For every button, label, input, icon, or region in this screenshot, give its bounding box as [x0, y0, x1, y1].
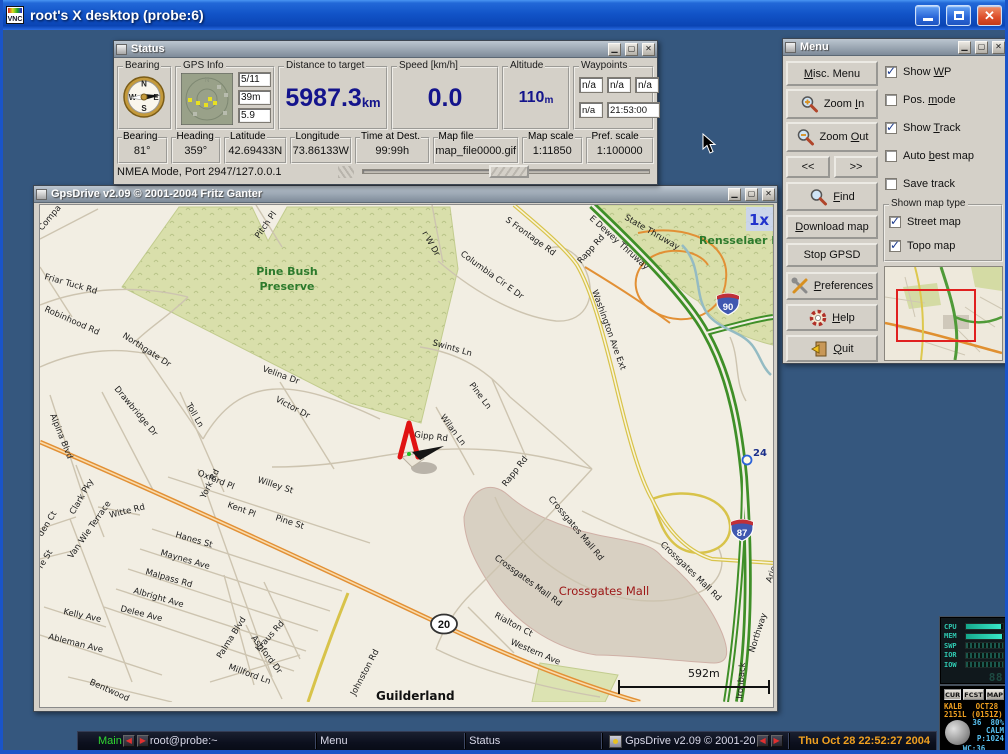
svg-text:1x: 1x	[749, 211, 769, 229]
altitude-value: 110	[519, 89, 545, 107]
gps-altitude-field[interactable]: 39m	[238, 90, 271, 105]
us-20-shield: 20	[431, 615, 457, 634]
sysmon-row-cpu: CPU	[944, 622, 1004, 631]
status-field-heading: Heading359°	[171, 137, 222, 164]
xp-titlebar[interactable]: VNC root's X desktop (probe:6) ✕	[0, 0, 1008, 30]
map-canvas[interactable]: 90 87 20 24	[39, 204, 774, 708]
desk-prev-button[interactable]: ◀	[123, 735, 135, 747]
status-field-pref-scale: Pref. scale1:100000	[586, 137, 655, 164]
checkbox-row-show-track: Show Track	[885, 118, 960, 138]
svg-text:592m: 592m	[688, 667, 720, 680]
waypoint-entry-2[interactable]: n/a	[607, 77, 631, 93]
menu-titlebar[interactable]: Menu ▁ ▢ ✕	[783, 39, 1007, 56]
status-titlebar[interactable]: Status ▁ ▢ ✕	[114, 41, 657, 58]
menu-title: Menu	[800, 41, 954, 53]
menu-button-misc-menu[interactable]: Misc. Menu	[786, 61, 878, 86]
svg-text:N: N	[204, 77, 209, 84]
taskbar-menu-window[interactable]: Menu	[320, 735, 460, 747]
weather-tab-cur[interactable]: CUR	[944, 689, 961, 700]
svg-text:E: E	[153, 93, 159, 102]
minimize-button[interactable]: ▁	[608, 43, 621, 56]
statusbar: NMEA Mode, Port 2947/127.0.0.1	[117, 162, 654, 181]
bearing-frame: Bearing N W S E	[117, 66, 172, 130]
compass: N W S E	[120, 72, 168, 120]
taskbar-gpsdrive-window[interactable]: GpsDrive v2.09 © 2001-20	[625, 735, 755, 747]
preferences-icon	[791, 277, 809, 295]
waypoint-entry-1[interactable]: n/a	[579, 77, 603, 93]
speed-frame: Speed [km/h] 0.0	[391, 66, 499, 130]
zoom-level-badge: 1x	[746, 207, 773, 231]
sysmon-row-mem: MEM	[944, 632, 1004, 641]
close-button[interactable]: ✕	[762, 188, 775, 201]
sysmon-row-ior: IOR	[944, 651, 1004, 660]
weather-tab-fcst[interactable]: FCST	[963, 689, 983, 700]
checkbox-save-track[interactable]	[885, 178, 897, 190]
maximize-button[interactable]: ▢	[975, 41, 988, 54]
help-icon	[809, 309, 827, 327]
waypoints-frame: Waypoints n/an/an/a n/a21:53:00	[573, 66, 654, 130]
map-label: Preserve	[259, 280, 314, 293]
window-menu-icon[interactable]	[36, 189, 47, 200]
checkbox-pos-mode[interactable]	[885, 94, 897, 106]
waypoint-entry-5[interactable]: 21:53:00	[607, 102, 660, 118]
menu-button-preferences[interactable]: Preferences	[786, 272, 878, 300]
gpsdrive-titlebar[interactable]: GpsDrive v2.09 © 2001-2004 Fritz Ganter …	[34, 186, 777, 203]
svg-text:90: 90	[723, 302, 734, 313]
window-menu-icon[interactable]	[785, 42, 796, 53]
map-label: Crossgates Mall	[559, 584, 649, 598]
svg-text:24: 24	[753, 448, 767, 459]
minimap[interactable]	[884, 266, 1003, 361]
satellite-skyplot: N	[181, 73, 233, 125]
sysmon-row-swp: SWP	[944, 641, 1004, 650]
cpu-bar	[965, 623, 1004, 630]
status-window: Status ▁ ▢ ✕ Bearing N W S E	[113, 40, 658, 185]
gpsdrive-title: GpsDrive v2.09 © 2001-2004 Fritz Ganter	[51, 188, 724, 200]
menu-window: Menu ▁ ▢ ✕ Misc. MenuZoom InZoom Out<<>>…	[782, 38, 1008, 364]
window-menu-icon[interactable]	[116, 44, 127, 55]
distance-value: 5987.3	[285, 84, 361, 113]
taskbar-status-window[interactable]: Status	[469, 735, 597, 747]
menu-button-zoom-out[interactable]: Zoom Out	[786, 122, 878, 152]
svg-text:S: S	[141, 104, 147, 113]
checkbox-street-map[interactable]	[889, 216, 901, 228]
menu-button-stop-gpsd[interactable]: Stop GPSD	[786, 243, 878, 267]
window-title: root's X desktop (probe:6)	[30, 7, 909, 23]
close-button[interactable]: ✕	[642, 43, 655, 56]
taskbar-main[interactable]: Main	[98, 735, 122, 747]
weather-dockapp: CURFCSTMAP KALB OCT28 2151L (0151Z) 36 8…	[940, 686, 1008, 752]
svg-text:20: 20	[438, 619, 450, 631]
gps-dop-field[interactable]: 5.9	[238, 108, 271, 123]
minimize-button[interactable]: ▁	[958, 41, 971, 54]
status-field-time-at-dest-: Time at Dest.99:99h	[355, 137, 430, 164]
checkbox-topo-map[interactable]	[889, 240, 901, 252]
svg-text:87: 87	[737, 528, 748, 539]
checkbox-row-save-track: Save track	[885, 174, 955, 194]
close-button[interactable]: ✕	[992, 41, 1005, 54]
gpsdrive-window: GpsDrive v2.09 © 2001-2004 Fritz Ganter …	[33, 185, 778, 712]
status-field-map-scale: Map scale1:11850	[522, 137, 583, 164]
menu-button-download-map[interactable]: Download map	[786, 215, 878, 239]
gpsdrive-taskbar-icon	[609, 735, 622, 748]
maximize-button[interactable]	[946, 5, 971, 26]
waypoint-entry-3[interactable]: n/a	[635, 77, 659, 93]
weather-windchill: WC:36	[944, 744, 1004, 753]
swp-bar	[965, 642, 1004, 649]
checkbox-row-topo-map: Topo map	[889, 236, 955, 256]
waypoint-entry-4[interactable]: n/a	[579, 102, 603, 118]
menu-button-zoom-in[interactable]: Zoom In	[786, 89, 878, 119]
menu-button-help[interactable]: Help	[786, 304, 878, 331]
maximize-button[interactable]: ▢	[745, 188, 758, 201]
resize-grip[interactable]	[338, 166, 354, 178]
map-label: Rensselaer Lan	[699, 234, 773, 247]
status-title: Status	[131, 43, 604, 55]
ior-bar	[965, 652, 1004, 659]
minimize-button[interactable]: ▁	[728, 188, 741, 201]
map-label: Guilderland	[376, 689, 455, 702]
menu-button-map-next[interactable]: >>	[834, 156, 878, 178]
sysmon-row-iow: IOW	[944, 660, 1004, 669]
altitude-frame: Altitude 110m	[502, 66, 570, 130]
gps-info-frame: GPS Info N 5/11 39m 5.9	[175, 66, 275, 130]
gps-satellites-field[interactable]: 5/11	[238, 72, 271, 87]
map-label: Pine Bush	[256, 265, 318, 278]
weather-tab-map[interactable]: MAP	[986, 689, 1004, 700]
zoom-out-icon	[796, 128, 815, 146]
win-prev-button[interactable]: ◀	[757, 735, 769, 747]
map-position-slider[interactable]	[362, 169, 651, 174]
vnc-icon: VNC	[6, 6, 24, 24]
taskbar-clock: Thu Oct 28 22:52:27 2004	[793, 735, 936, 747]
checkbox-auto-best-map[interactable]	[885, 150, 897, 162]
win-next-button[interactable]: ▶	[771, 735, 783, 747]
checkbox-show-wp[interactable]	[885, 66, 897, 78]
find-icon	[809, 188, 828, 206]
menu-button-map-prev[interactable]: <<	[786, 156, 830, 178]
mem-bar	[965, 633, 1004, 640]
slider-handle[interactable]	[489, 165, 529, 178]
nmea-status-text: NMEA Mode, Port 2947/127.0.0.1	[117, 166, 282, 178]
status-field-bearing: Bearing81°	[117, 137, 168, 164]
checkbox-row-street-map: Street map	[889, 212, 961, 232]
checkbox-row-show-wp: Show WP	[885, 62, 951, 82]
vnc-window: VNC root's X desktop (probe:6) ✕ GpsDriv…	[0, 0, 1008, 754]
checkbox-row-pos-mode: Pos. mode	[885, 90, 956, 110]
checkbox-show-track[interactable]	[885, 122, 897, 134]
speed-value: 0.0	[428, 84, 463, 113]
zoom-in-icon	[800, 95, 819, 113]
status-field-latitude: Latitude42.69433N	[224, 137, 287, 164]
moon-phase-icon	[945, 720, 970, 745]
map-svg: 90 87 20 24	[40, 205, 773, 702]
checkbox-row-auto-best-map: Auto best map	[885, 146, 974, 166]
status-field-map-file: Map filemap_file0000.gif	[433, 137, 520, 164]
quit-icon	[810, 340, 828, 358]
distance-frame: Distance to target 5987.3km	[278, 66, 388, 130]
mouse-cursor	[702, 133, 718, 155]
status-field-longitude: Longitude73.86133W	[290, 137, 353, 164]
close-button[interactable]: ✕	[977, 5, 1002, 26]
taskbar: Main ◀ ▶ root@probe:~ Menu Status GpsDri…	[77, 731, 937, 751]
menu-button-quit[interactable]: Quit	[786, 335, 878, 362]
maximize-button[interactable]: ▢	[625, 43, 638, 56]
status-fields-row: Bearing81°Heading359°Latitude42.69433NLo…	[117, 137, 654, 164]
desk-next-button[interactable]: ▶	[137, 735, 149, 747]
map-type-frame: Shown map type Street mapTopo map	[883, 204, 1003, 262]
minimize-button[interactable]	[915, 5, 940, 26]
menu-button-find[interactable]: Find	[786, 182, 878, 211]
sysmon-dockapp: CPUMEMSWPIORIOW 88 88.28.32	[940, 617, 1008, 684]
taskbar-terminal[interactable]: root@probe:~	[150, 735, 218, 747]
iow-bar	[965, 661, 1004, 668]
svg-text:N: N	[141, 80, 147, 89]
